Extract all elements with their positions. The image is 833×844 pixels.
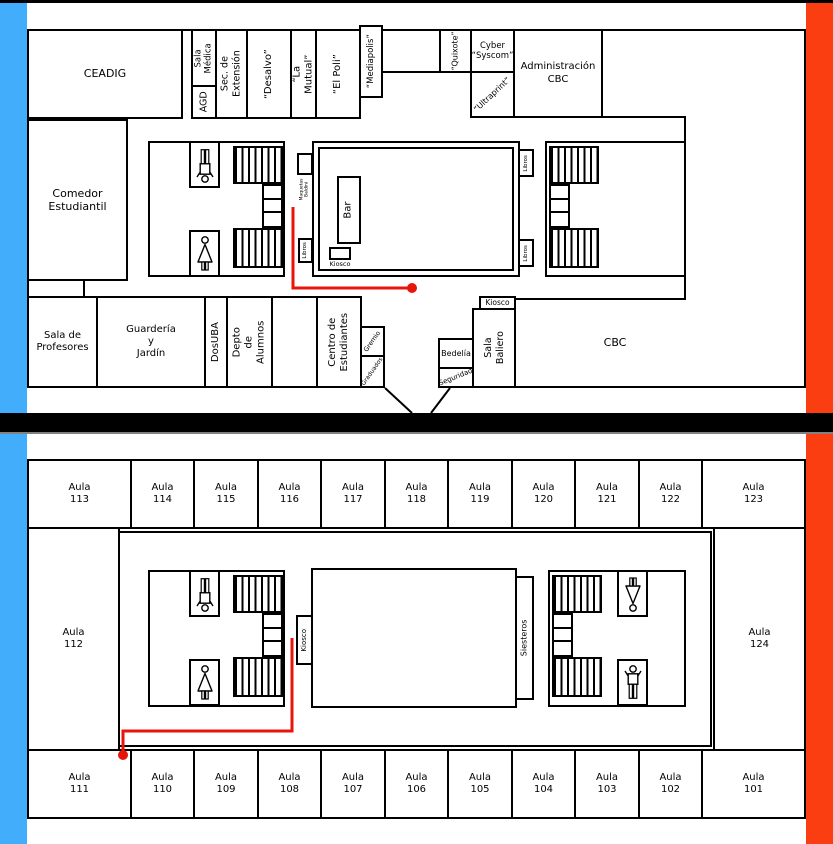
room-kiosco-lower: Kiosco	[296, 615, 313, 665]
stairs	[233, 575, 283, 613]
male-restroom-icon	[195, 147, 215, 183]
room-libros-right-bottom: Libros	[518, 239, 534, 267]
room-ultraprint: “Ultraprint”	[470, 71, 515, 118]
room-libros-left: Libros	[298, 238, 313, 263]
room-guarderia-y-jardin: Guardería y Jardín	[96, 296, 206, 388]
stairs	[233, 146, 283, 184]
female-restroom-icon	[195, 665, 215, 701]
wall-segment	[383, 71, 441, 73]
room-aula-120: Aula 120	[511, 459, 576, 529]
room-el-poli: “El Poli”	[315, 29, 361, 119]
room-aula-123: Aula 123	[701, 459, 806, 529]
stairs	[549, 228, 599, 268]
room-cbc-label: CBC	[560, 325, 670, 361]
room-sala-medica: Sala Médica	[191, 29, 218, 87]
stair-landing-steps	[262, 184, 283, 228]
room-aula-119: Aula 119	[447, 459, 513, 529]
room-unlabeled	[271, 296, 318, 388]
room-aula-103: Aula 103	[574, 749, 640, 819]
stairs	[552, 657, 602, 697]
room-aula-108: Aula 108	[257, 749, 322, 819]
wall-segment	[804, 29, 806, 388]
room-aula-109: Aula 109	[193, 749, 259, 819]
central-hall	[311, 568, 517, 708]
womens-restroom	[189, 230, 220, 277]
room-comedor-estudiantil: Comedor Estudiantil	[27, 119, 128, 281]
room-aula-104: Aula 104	[511, 749, 576, 819]
room-maquetas-label: Maquetas Baldini	[292, 173, 318, 205]
room-aula-116: Aula 116	[257, 459, 322, 529]
room-kiosco-patio-label: Kiosco	[320, 259, 360, 270]
room-aula-121: Aula 121	[574, 459, 640, 529]
room-aula-117: Aula 117	[320, 459, 386, 529]
room-aula-101: Aula 101	[701, 749, 806, 819]
room-seguridad: Seguridad	[438, 367, 474, 388]
maquetas-stand-box	[297, 153, 313, 175]
room-libros-right-top: Libros	[518, 149, 534, 177]
room-cyber-syscom: Cyber “Syscom”	[470, 29, 515, 73]
stair-landing-steps	[262, 613, 283, 657]
room-sala-baliero: Sala Baliero	[472, 308, 516, 388]
floor-divider-band	[0, 413, 833, 432]
room-depto-de-alumnos: Depto de Alumnos	[226, 296, 273, 388]
room-secretaria-extension: Sec. de Extensión	[215, 29, 248, 119]
building-floor-plan: CEADIG Sala Médica AGD Sec. de Extensión…	[0, 0, 833, 844]
entrance-funnel-line-right	[431, 388, 450, 413]
room-la-mutual: “La Mutual”	[290, 29, 317, 119]
stair-landing-steps	[549, 184, 570, 228]
room-aula-124: Aula 124	[713, 527, 806, 751]
room-aula-110: Aula 110	[130, 749, 195, 819]
room-aula-114: Aula 114	[130, 459, 195, 529]
stairs	[233, 657, 283, 697]
room-aula-115: Aula 115	[193, 459, 259, 529]
room-bar: Bar	[337, 176, 361, 244]
female-restroom-icon	[195, 236, 215, 272]
room-aula-113: Aula 113	[27, 459, 132, 529]
wall-segment	[472, 386, 806, 388]
stairs	[233, 228, 283, 268]
mens-restroom	[189, 570, 220, 617]
female-restroom-icon	[623, 576, 643, 612]
stair-landing-steps	[552, 613, 573, 657]
wall-segment	[515, 298, 686, 300]
room-aula-107: Aula 107	[320, 749, 386, 819]
room-aula-122: Aula 122	[638, 459, 703, 529]
room-dosuba: DosUBA	[204, 296, 228, 388]
wall-segment	[603, 116, 686, 118]
womens-restroom	[189, 659, 220, 706]
route-endpoint-dot-upper	[407, 283, 417, 293]
floor-divider-gray-line	[0, 432, 833, 434]
male-restroom-icon	[623, 665, 643, 701]
room-sala-de-profesores: Sala de Profesores	[27, 296, 98, 388]
top-border-line	[0, 0, 833, 3]
room-aula-111: Aula 111	[27, 749, 132, 819]
room-aula-106: Aula 106	[384, 749, 449, 819]
stairs	[549, 146, 599, 184]
room-aula-105: Aula 105	[447, 749, 513, 819]
male-restroom-icon	[195, 576, 215, 612]
room-quixote: “Quixote”	[439, 29, 472, 73]
womens-restroom	[617, 570, 648, 617]
room-aula-118: Aula 118	[384, 459, 449, 529]
room-mediapolis: “Mediapolis”	[359, 25, 383, 98]
room-ceadig: CEADIG	[27, 29, 183, 119]
mens-restroom	[617, 659, 648, 706]
room-bedelia: Bedelía	[438, 338, 474, 369]
mens-restroom	[189, 141, 220, 188]
room-desalvo: “Desalvo”	[246, 29, 292, 119]
room-siesteros: Siesteros	[515, 576, 534, 700]
room-gremio: Gremio	[360, 326, 385, 357]
room-agd: AGD	[191, 85, 218, 119]
room-administracion-cbc: Administración CBC	[513, 29, 603, 118]
room-aula-102: Aula 102	[638, 749, 703, 819]
room-aula-112: Aula 112	[27, 527, 120, 751]
room-centro-de-estudiantes: Centro de Estudiantes	[316, 296, 362, 388]
room-graduados: Graduados	[360, 355, 385, 388]
entrance-funnel-line-left	[385, 388, 412, 413]
stairs	[552, 575, 602, 613]
